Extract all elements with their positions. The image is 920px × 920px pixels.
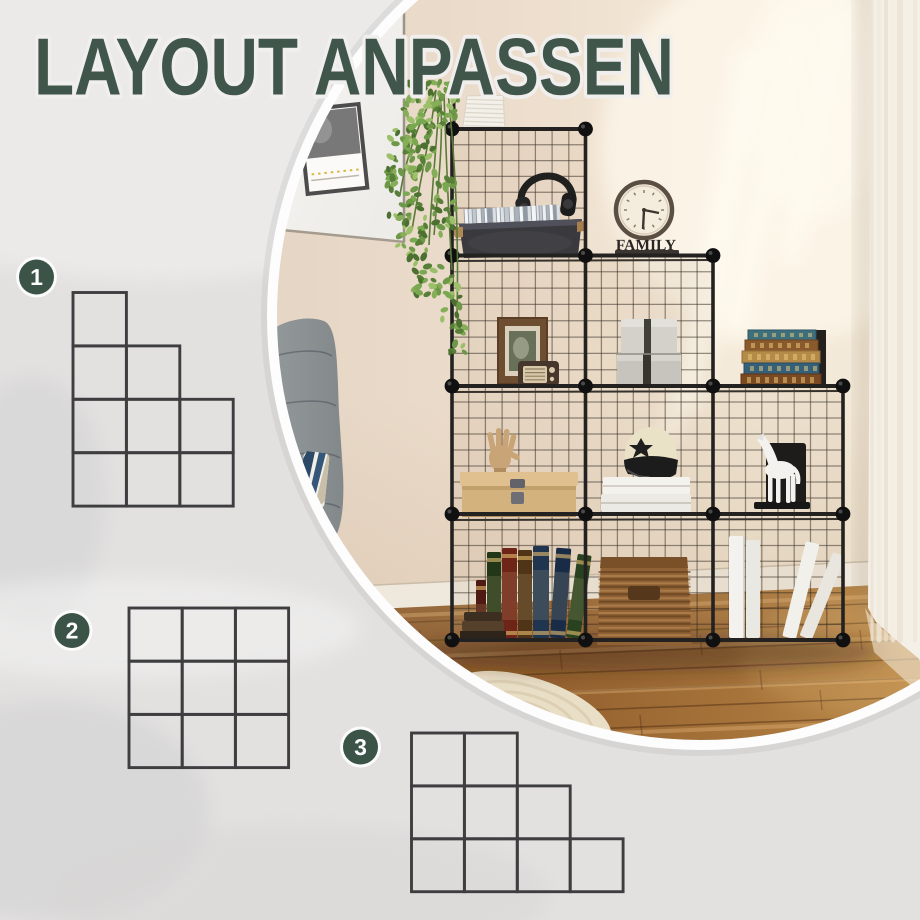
svg-text:LAYOUT ANPASSEN: LAYOUT ANPASSEN xyxy=(34,23,674,113)
svg-text:1: 1 xyxy=(30,264,43,290)
svg-text:3: 3 xyxy=(354,734,367,760)
svg-text:2: 2 xyxy=(66,618,79,644)
